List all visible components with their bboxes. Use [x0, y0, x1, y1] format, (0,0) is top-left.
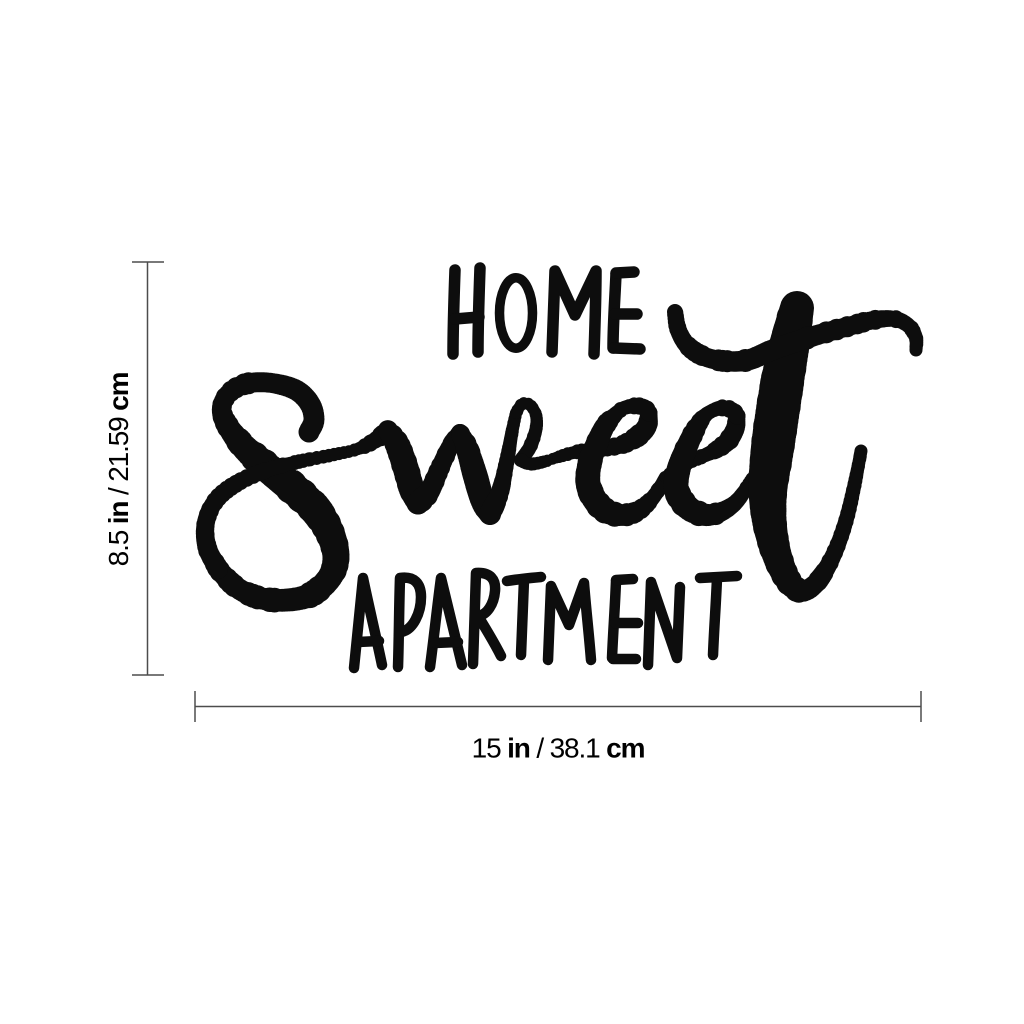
svg-text:8.5 in / 21.59 cm: 8.5 in / 21.59 cm [103, 372, 134, 566]
svg-text:15 in / 38.1 cm: 15 in / 38.1 cm [472, 733, 645, 764]
